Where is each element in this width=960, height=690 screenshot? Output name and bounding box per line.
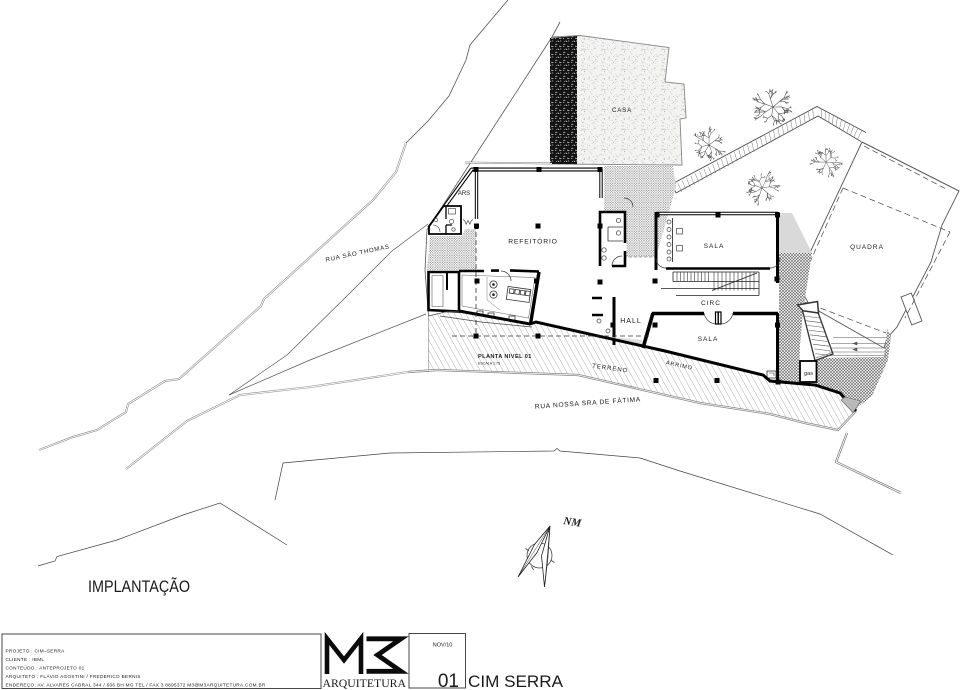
svg-text:ESCALA 1:75: ESCALA 1:75 bbox=[478, 362, 500, 366]
svg-text:NOV/10: NOV/10 bbox=[433, 643, 453, 649]
svg-text:CASA: CASA bbox=[612, 107, 632, 114]
svg-text:ARQUITETURA: ARQUITETURA bbox=[323, 678, 407, 690]
svg-text:01: 01 bbox=[438, 671, 459, 690]
svg-text:ARQUITETO : FLÁVIO AGOSTIN: ARQUITETO : FLÁVIO AGOSTINI / FREDERICO … bbox=[6, 673, 141, 679]
svg-text:HALL: HALL bbox=[620, 318, 642, 325]
svg-text:PROJETO : CIM–SERRA: PROJETO : CIM–SERRA bbox=[6, 649, 66, 654]
svg-text:SALA: SALA bbox=[698, 336, 719, 343]
svg-text:CONTEÚDO : ANTEPROJETO 01: CONTEÚDO : ANTEPROJETO 01 bbox=[6, 665, 85, 671]
svg-text:ENDEREÇO: AV. ALVARES CABR: ENDEREÇO: AV. ALVARES CABRAL 344 / 606 B… bbox=[6, 682, 266, 687]
svg-text:PLANTA NIVEL 01: PLANTA NIVEL 01 bbox=[478, 354, 532, 360]
svg-text:SALA: SALA bbox=[704, 243, 725, 250]
svg-text:gas: gas bbox=[804, 371, 813, 377]
svg-text:IMPLANTAÇÃO: IMPLANTAÇÃO bbox=[88, 577, 190, 596]
svg-text:REFEITÓRIO: REFEITÓRIO bbox=[508, 237, 558, 246]
svg-text:CIRC: CIRC bbox=[701, 300, 721, 307]
svg-text:QUADRA: QUADRA bbox=[850, 244, 884, 251]
svg-text:CIM SERRA: CIM SERRA bbox=[468, 672, 564, 690]
svg-text:ARS: ARS bbox=[458, 191, 470, 197]
svg-text:CLIENTE : IBML: CLIENTE : IBML bbox=[6, 657, 45, 662]
